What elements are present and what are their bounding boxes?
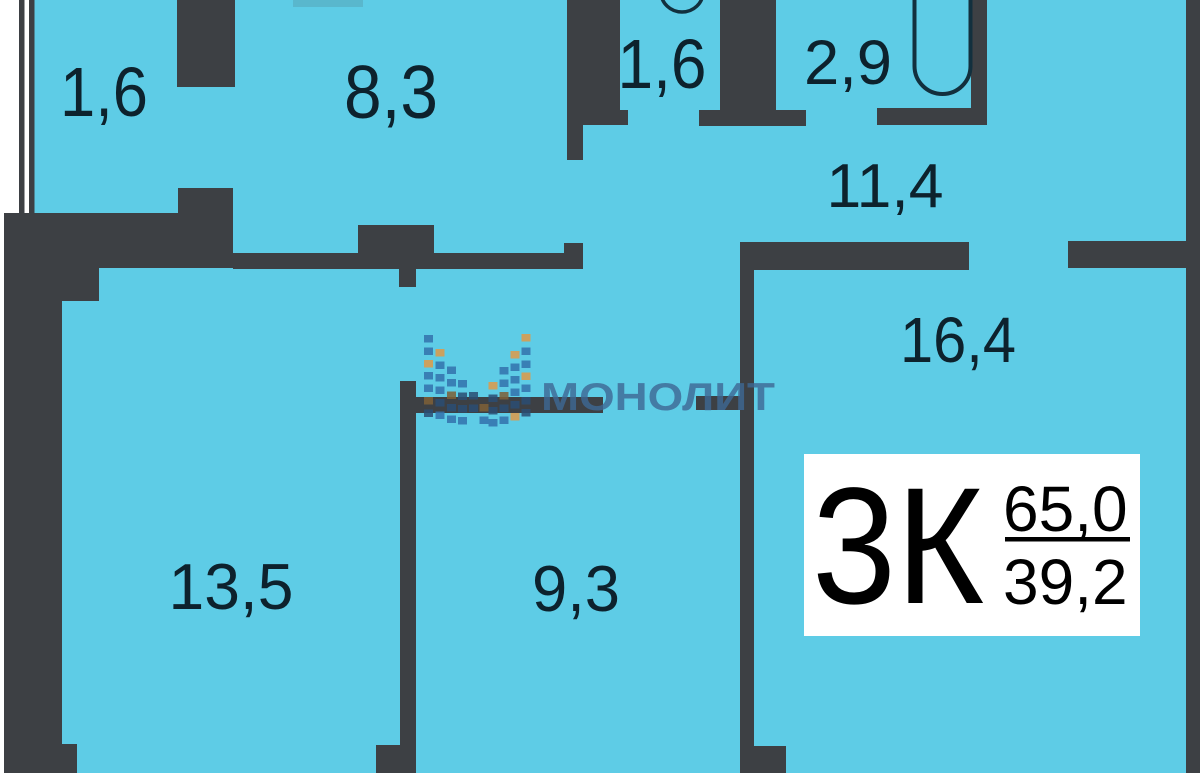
svg-text:16,4: 16,4	[900, 304, 1016, 376]
svg-text:2,9: 2,9	[804, 28, 892, 98]
svg-text:9,3: 9,3	[532, 552, 620, 625]
svg-text:39,2: 39,2	[1003, 546, 1128, 618]
svg-text:13,5: 13,5	[169, 550, 294, 623]
svg-text:МОНОЛИТ: МОНОЛИТ	[541, 376, 775, 419]
svg-text:65,0: 65,0	[1003, 473, 1128, 545]
svg-text:8,3: 8,3	[344, 50, 438, 134]
svg-text:11,4: 11,4	[827, 152, 944, 221]
svg-text:1,6: 1,6	[60, 53, 148, 131]
svg-text:3К: 3К	[812, 454, 984, 639]
svg-text:1,6: 1,6	[618, 25, 707, 103]
